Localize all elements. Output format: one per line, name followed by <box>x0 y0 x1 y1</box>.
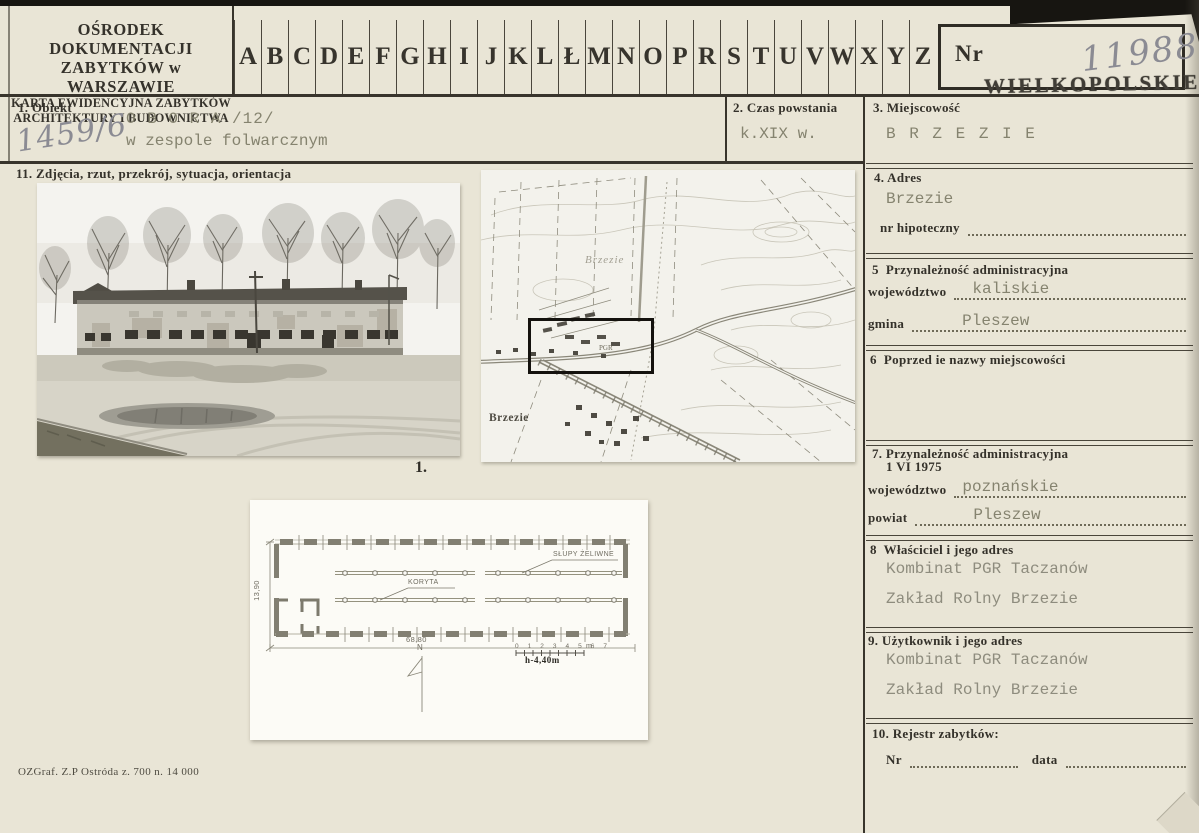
org-line2: ZABYTKÓW w WARSZAWIE <box>10 58 232 96</box>
field-adres-hipoteczny-row: nr hipoteczny <box>880 218 1186 236</box>
right-col-divider <box>866 535 1193 541</box>
field-wlasciciel-label: 8 Właściciel i jego adres <box>870 542 1013 558</box>
gmina-line: Pleszew <box>912 314 1186 332</box>
alphabet-letter: N <box>617 43 635 71</box>
alphabet-letter: U <box>779 43 797 71</box>
right-column-left-rule <box>863 95 865 833</box>
field-przynaleznosc1975-date: 1 VI 1975 <box>886 459 942 475</box>
alphabet-cell: H <box>423 20 450 94</box>
plan-width-dimension: 13,90 <box>252 580 261 601</box>
field-zdjecia-label: 11. Zdjęcia, rzut, przekrój, sytuacja, o… <box>16 166 291 182</box>
alphabet-cell: A <box>234 20 261 94</box>
alphabet-letter: M <box>587 43 611 71</box>
rejestr-nr-label: Nr <box>886 752 902 768</box>
uzytkownik-line1: Kombinat PGR Taczanów <box>886 651 1088 669</box>
gmina-label: gmina <box>868 316 904 332</box>
alphabet-cell: L <box>531 20 558 94</box>
alphabet-letter: P <box>672 43 687 71</box>
alphabet-letter: X <box>860 43 878 71</box>
alphabet-cell: P <box>666 20 693 94</box>
field-przynaleznosc-label: 5 Przynależność administracyjna <box>872 262 1068 278</box>
field-uzytkownik-label: 9. Użytkownik i jego adres <box>868 633 1023 649</box>
alphabet-letter: R <box>698 43 716 71</box>
field-adres-value: Brzezie <box>886 190 953 208</box>
alphabet-cell: V <box>801 20 828 94</box>
alphabet-index-strip: A B C D E F G <box>234 20 936 94</box>
alphabet-letter: Y <box>887 43 905 71</box>
alphabet-letter: S <box>727 43 741 71</box>
situation-map: Brzezie Brzezie PGR <box>481 170 855 462</box>
plan-troughs-label: KORYTA <box>408 579 439 586</box>
alphabet-cell: Ł <box>558 20 585 94</box>
photo-illustration <box>37 183 460 456</box>
alphabet-letter: W <box>830 43 855 71</box>
wlasciciel-line1: Kombinat PGR Taczanów <box>886 560 1088 578</box>
alphabet-cell: W <box>828 20 855 94</box>
powiat-line: Pleszew <box>915 508 1186 526</box>
alphabet-letter: F <box>375 43 390 71</box>
wojewodztwo1975-value: poznańskie <box>962 478 1058 496</box>
alphabet-letter: C <box>293 43 311 71</box>
right-col-divider <box>866 345 1193 351</box>
wojewodztwo1975-label: województwo <box>868 482 946 498</box>
field-powiat-row: powiat Pleszew <box>868 508 1186 526</box>
alphabet-cell: M <box>585 20 612 94</box>
alphabet-letter: I <box>459 43 469 71</box>
alphabet-cell: C <box>288 20 315 94</box>
building-photograph <box>37 183 460 456</box>
print-shop-note: OZGraf. Z.P Ostróda z. 700 n. 14 000 <box>18 766 199 778</box>
field-wojewodztwo-row: województwo kaliskie <box>868 282 1186 300</box>
map-village-label-top: Brzezie <box>585 254 624 266</box>
rejestr-nr-line <box>910 750 1018 768</box>
map-illustration <box>481 170 855 462</box>
alphabet-letter: V <box>806 43 824 71</box>
rejestr-data-label: data <box>1032 752 1058 768</box>
nr-label: Nr <box>955 41 984 67</box>
header-bottom-rule <box>0 94 1199 97</box>
field-miejscowosc-label: 3. Miejscowość <box>873 100 960 116</box>
alphabet-letter: B <box>267 43 284 71</box>
right-col-divider <box>866 253 1193 259</box>
rejestr-data-line <box>1066 750 1186 768</box>
field-rejestr-label: 10. Rejestr zabytków: <box>872 726 999 742</box>
alphabet-cell: E <box>342 20 369 94</box>
map-village-label-bottom: Brzezie <box>489 412 529 424</box>
alphabet-letter: K <box>508 43 527 71</box>
alphabet-letter: Z <box>915 43 932 71</box>
wojewodztwo-label: województwo <box>868 284 946 300</box>
alphabet-cell: K <box>504 20 531 94</box>
field-czas-value: k.XIX w. <box>740 125 817 143</box>
alphabet-cell: G <box>396 20 423 94</box>
field-rejestr-row: Nr data <box>886 750 1186 768</box>
wojewodztwo-line: kaliskie <box>954 282 1186 300</box>
field-miejscowosc-value: B R Z E Z I E <box>886 125 1037 143</box>
alphabet-cell: I <box>450 20 477 94</box>
alphabet-cell: T <box>747 20 774 94</box>
wojewodztwo1975-line: poznańskie <box>954 480 1186 498</box>
alphabet-cell: R <box>693 20 720 94</box>
alphabet-letter: L <box>537 43 554 71</box>
alphabet-letter: G <box>400 43 419 71</box>
row2-bottom-rule <box>0 161 863 164</box>
uzytkownik-line2: Zakład Rolny Brzezie <box>886 681 1078 699</box>
map-highlight-rectangle <box>528 318 654 374</box>
alphabet-cell: B <box>261 20 288 94</box>
org-title-block: OŚRODEK DOKUMENTACJI ZABYTKÓW w WARSZAWI… <box>8 6 234 94</box>
heritage-record-card: OŚRODEK DOKUMENTACJI ZABYTKÓW w WARSZAWI… <box>0 0 1199 833</box>
right-col-divider <box>866 163 1193 169</box>
alphabet-cell: N <box>612 20 639 94</box>
field-poprzednie-label: 6 Poprzed ie nazwy miejscowości <box>870 352 1066 368</box>
alphabet-cell: D <box>315 20 342 94</box>
field-gmina-row: gmina Pleszew <box>868 314 1186 332</box>
powiat-value: Pleszew <box>973 506 1040 524</box>
plan-columns-label: SŁUPY ŻELIWNE <box>553 551 614 558</box>
alphabet-cell: U <box>774 20 801 94</box>
field-adres-sub-line <box>968 218 1186 236</box>
alphabet-cell: S <box>720 20 747 94</box>
field-adres-label: 4. Adres <box>874 170 922 186</box>
alphabet-letter: O <box>643 43 662 71</box>
alphabet-letter: Ł <box>564 43 581 71</box>
floor-plan-sheet: SŁUPY ŻELIWNE KORYTA 68,80 13,90 N 0 1 2… <box>250 500 648 740</box>
alphabet-letter: J <box>485 43 498 71</box>
plan-scale-numbers: 0 1 2 3 4 5 6 7 <box>515 643 611 650</box>
plan-north-label: N <box>417 643 423 652</box>
wlasciciel-line2: Zakład Rolny Brzezie <box>886 590 1078 608</box>
powiat-label: powiat <box>868 510 907 526</box>
right-col-divider <box>866 718 1193 724</box>
field-obiekt-value-1: O B O R A /12/ <box>126 110 274 128</box>
alphabet-letter: H <box>427 43 446 71</box>
plan-height-note: h-4,40m <box>525 655 560 665</box>
plan-illustration <box>250 500 648 740</box>
alphabet-cell: F <box>369 20 396 94</box>
field-wojewodztwo1975-row: województwo poznańskie <box>868 480 1186 498</box>
alphabet-letter: A <box>239 43 257 71</box>
photo-caption: 1. <box>415 459 427 477</box>
field-obiekt-value-2: w zespole folwarcznym <box>126 132 328 150</box>
alphabet-cell: O <box>639 20 666 94</box>
alphabet-cell: X <box>855 20 882 94</box>
plan-scale-unit: m <box>586 643 592 650</box>
field1-2-divider <box>725 95 727 163</box>
card-left-rule <box>8 95 10 163</box>
alphabet-letter: T <box>753 43 770 71</box>
gmina-value: Pleszew <box>962 312 1029 330</box>
alphabet-cell: J <box>477 20 504 94</box>
alphabet-letter: E <box>348 43 365 71</box>
field-czas-label: 2. Czas powstania <box>733 100 837 116</box>
alphabet-letter: D <box>320 43 338 71</box>
field-adres-sub-label: nr hipoteczny <box>880 220 960 236</box>
wojewodztwo-value: kaliskie <box>972 280 1049 298</box>
org-line1: OŚRODEK DOKUMENTACJI <box>10 20 232 58</box>
field-obiekt-label: 1. Obiekt <box>18 100 72 116</box>
alphabet-cell: Y <box>882 20 909 94</box>
paper-edge-shadow <box>1185 0 1199 833</box>
alphabet-cell: Z <box>909 20 936 94</box>
